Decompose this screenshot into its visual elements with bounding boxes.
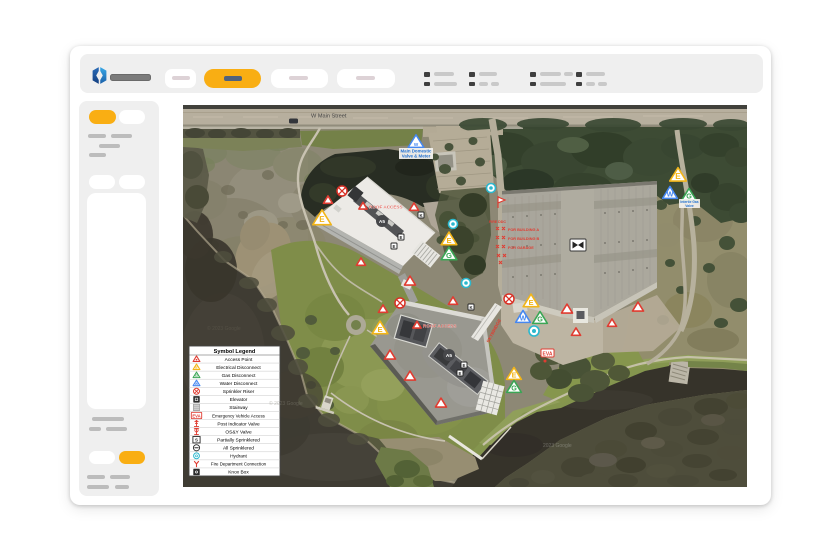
svg-text:G: G xyxy=(446,251,452,260)
svg-text:Valve: Valve xyxy=(685,204,694,208)
svg-text:FOR BUILDING A: FOR BUILDING A xyxy=(508,228,539,232)
svg-text:© 2023 Google: © 2023 Google xyxy=(207,325,241,332)
svg-text:Partially Sprinklered: Partially Sprinklered xyxy=(217,437,260,443)
svg-text:E: E xyxy=(675,172,681,181)
svg-text:© 2023 Google: © 2023 Google xyxy=(269,400,303,407)
svg-text:Sprinkler Riser: Sprinkler Riser xyxy=(223,389,255,395)
svg-text:Emergency Vehicle Access: Emergency Vehicle Access xyxy=(212,413,266,418)
svg-text:FIRE DDC: FIRE DDC xyxy=(489,220,506,224)
svg-text:E: E xyxy=(393,244,396,249)
svg-text:Stairway: Stairway xyxy=(229,405,248,411)
svg-text:G: G xyxy=(511,384,517,393)
svg-text:E: E xyxy=(463,363,466,368)
svg-text:Symbol Legend: Symbol Legend xyxy=(214,349,256,355)
svg-text:All Sprinklered: All Sprinklered xyxy=(223,446,254,452)
svg-text:FOR GARAGE: FOR GARAGE xyxy=(508,246,534,250)
svg-text:E: E xyxy=(319,215,325,224)
svg-text:E: E xyxy=(528,298,533,307)
svg-text:E: E xyxy=(459,371,462,376)
svg-text:OS&Y Valve: OS&Y Valve xyxy=(225,429,252,435)
svg-text:Electrical Disconnect: Electrical Disconnect xyxy=(216,365,261,371)
svg-text:Valve & Meter: Valve & Meter xyxy=(402,154,431,159)
svg-text:Hydrant: Hydrant xyxy=(230,454,247,460)
svg-text:ROOF ACCESS: ROOF ACCESS xyxy=(423,324,457,329)
svg-text:EVA: EVA xyxy=(543,351,553,357)
svg-text:Gas Disconnect: Gas Disconnect xyxy=(222,373,257,379)
svg-text:ROOF ACCESS: ROOF ACCESS xyxy=(369,205,403,210)
svg-text:FOR BUILDING B: FOR BUILDING B xyxy=(508,237,539,241)
svg-text:Fire Department Connection: Fire Department Connection xyxy=(211,462,267,467)
svg-text:W: W xyxy=(667,190,674,199)
svg-text:EVA: EVA xyxy=(192,413,200,418)
svg-text:W: W xyxy=(520,314,527,323)
svg-text:E: E xyxy=(512,371,517,380)
svg-text:2023 Google: 2023 Google xyxy=(543,443,572,449)
svg-text:G: G xyxy=(195,374,198,378)
svg-text:Knox Box: Knox Box xyxy=(228,470,249,476)
svg-text:W: W xyxy=(414,142,419,147)
svg-text:E: E xyxy=(377,325,382,334)
svg-text:E: E xyxy=(446,236,451,245)
svg-text:Elevator: Elevator xyxy=(230,397,248,403)
svg-text:E: E xyxy=(400,235,403,240)
svg-text:Access Point: Access Point xyxy=(225,357,253,363)
svg-text:Post Indicator Valve: Post Indicator Valve xyxy=(217,421,260,427)
svg-text:Water Disconnect: Water Disconnect xyxy=(220,381,258,387)
svg-text:G: G xyxy=(537,315,543,324)
svg-text:S: S xyxy=(195,437,198,442)
